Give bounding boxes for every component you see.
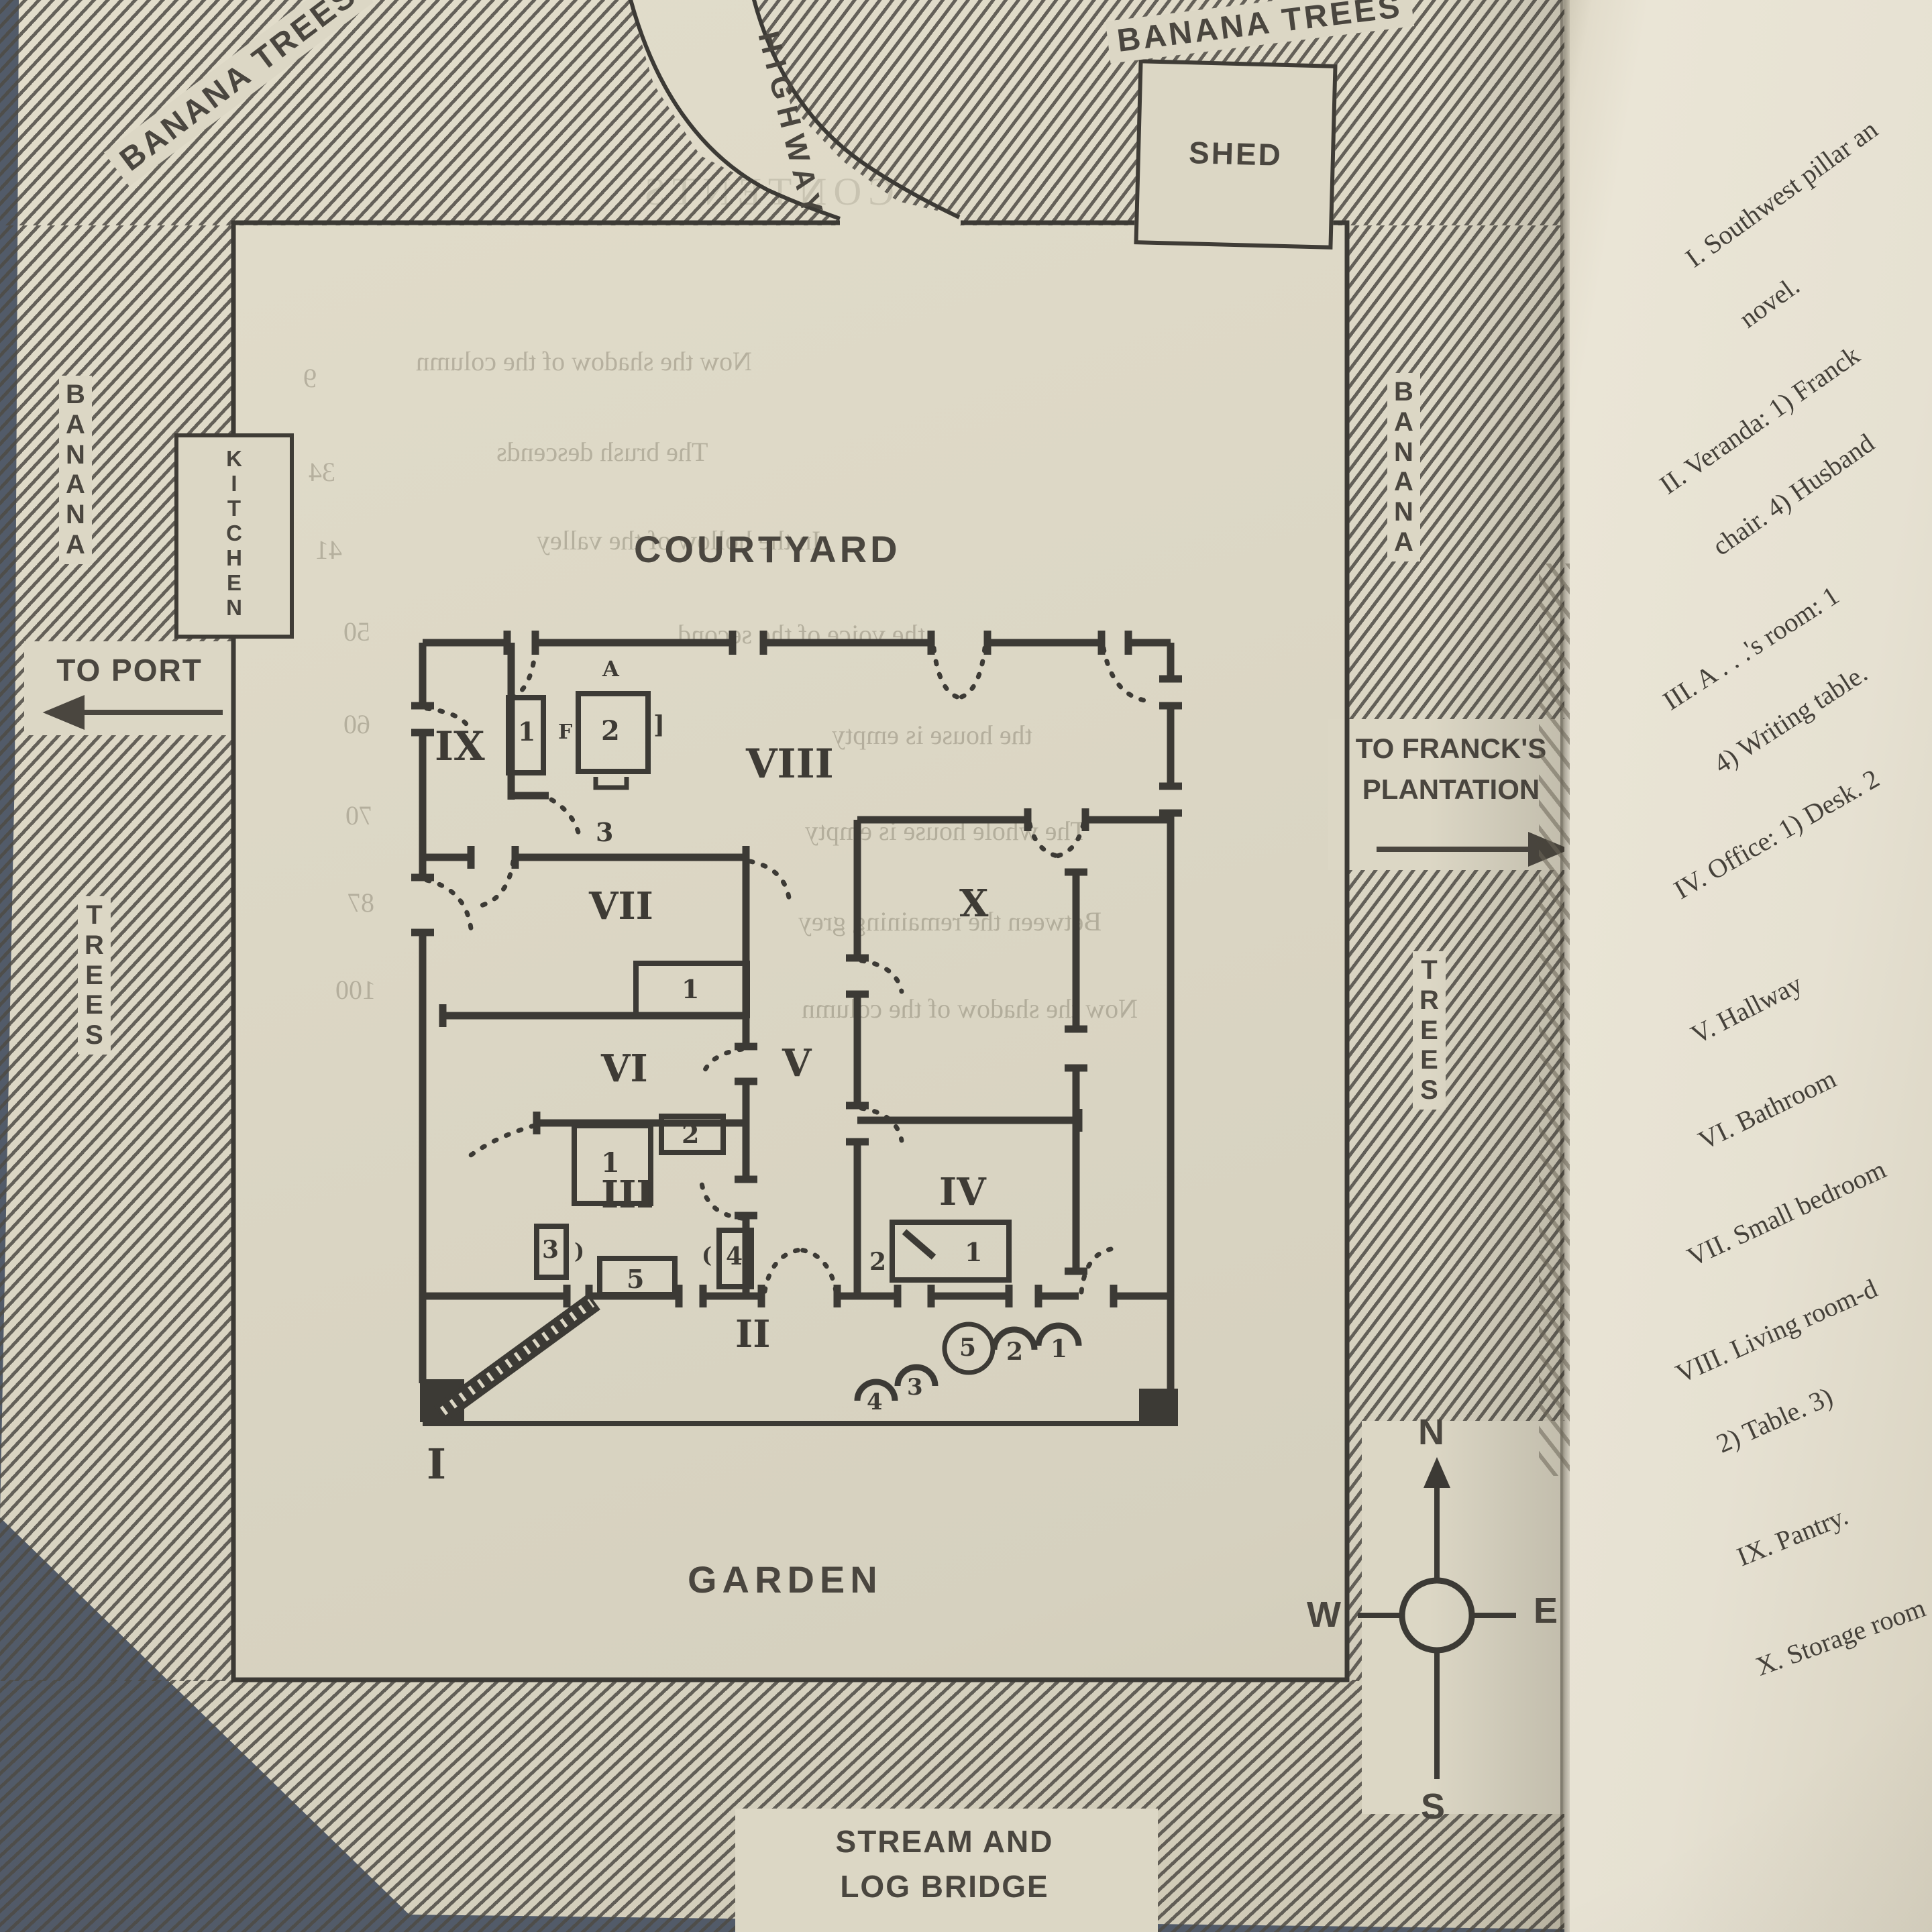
legend-line: IX. Pantry. (1733, 1500, 1852, 1572)
stream-label: STREAM AND LOG BRIDGE (743, 1819, 1146, 1909)
compass-north-label: N (1418, 1411, 1444, 1453)
room-IX-label: IX (435, 723, 485, 770)
trees-right-label: T R E E S (1413, 951, 1446, 1110)
room-I-label: I (427, 1440, 446, 1489)
ix-item3-label: 3 (596, 817, 613, 847)
ix-a-label: A (602, 656, 619, 682)
vii-item1-label: 1 (682, 974, 699, 1004)
veranda-item2-label: 2 (1006, 1338, 1023, 1366)
room-X-label: X (959, 881, 988, 926)
room-IV-label: IV (939, 1170, 986, 1214)
to-francks-label: TO FRANCK'S PLANTATION (1332, 729, 1570, 810)
veranda-item5-label: 5 (959, 1334, 976, 1362)
room-VIII-label: VIII (746, 741, 834, 788)
compass-south-label: S (1421, 1786, 1445, 1827)
shed-box: SHED (1134, 59, 1337, 250)
ix-item2-label: 2 (601, 715, 620, 747)
southeast-pillar (1139, 1389, 1178, 1424)
kitchen-box: K I T C H E N (174, 433, 294, 639)
banana-left-label: B A N A N A (59, 376, 92, 564)
veranda-item1-label: 1 (1051, 1335, 1067, 1363)
shed-label: SHED (1140, 133, 1331, 174)
ix-f-label: F (558, 720, 572, 744)
trees-left-label: T R E E S (78, 896, 111, 1055)
veranda-item4-label: 4 (867, 1389, 883, 1415)
room-VI-label: VI (601, 1046, 648, 1091)
to-port-label: TO PORT (32, 652, 227, 688)
iii-bracket-r-label: ) (574, 1238, 584, 1264)
page-edge-deckle (1539, 563, 1570, 1476)
veranda-item3-label: 3 (907, 1374, 923, 1401)
iii-item3-label: 3 (542, 1236, 559, 1264)
property-boundary (233, 223, 1347, 1680)
compass-west-label: W (1307, 1594, 1341, 1635)
ix-bracket-label: ] (653, 711, 665, 739)
ix-item1-label: 1 (518, 716, 535, 747)
vi-item1-label: 1 (601, 1147, 620, 1179)
room-V-label: V (782, 1041, 811, 1085)
compass-rose (1358, 1457, 1516, 1779)
garden-label: GARDEN (688, 1558, 883, 1601)
legend-page: I. Southwest pillar an novel. II. Verand… (1564, 0, 1932, 1932)
legend-line: X. Storage room (1752, 1593, 1929, 1682)
iii-bracket-l-label: ( (702, 1242, 712, 1268)
kitchen-label: K I T C H E N (178, 447, 290, 621)
compass-east-label: E (1534, 1590, 1558, 1631)
iii-item4-label: 4 (726, 1242, 743, 1271)
room-II-label: II (735, 1312, 770, 1356)
banana-right-label: B A N A N A (1387, 373, 1420, 561)
book-photo: CONTENTS Now the shadow of the column 9 … (0, 0, 1932, 1932)
room-III-label: III (601, 1173, 654, 1217)
room-VII-label: VII (589, 884, 653, 928)
courtyard-label: COURTYARD (634, 527, 901, 571)
iv-item2-label: 2 (869, 1248, 886, 1276)
iii-item5-label: 5 (627, 1264, 644, 1294)
iv-item1-label: 1 (965, 1237, 982, 1267)
vi-item2-label: 2 (682, 1119, 699, 1149)
